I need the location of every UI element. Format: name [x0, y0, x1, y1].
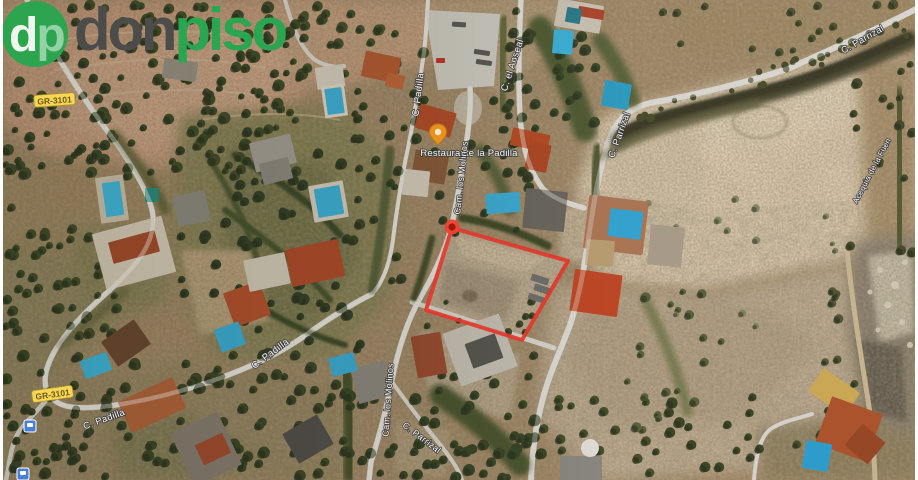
svg-text:Restaurante la Padilla: Restaurante la Padilla: [420, 148, 518, 159]
svg-text:dp: dp: [9, 9, 64, 62]
svg-text:donpiso: donpiso: [74, 0, 286, 63]
